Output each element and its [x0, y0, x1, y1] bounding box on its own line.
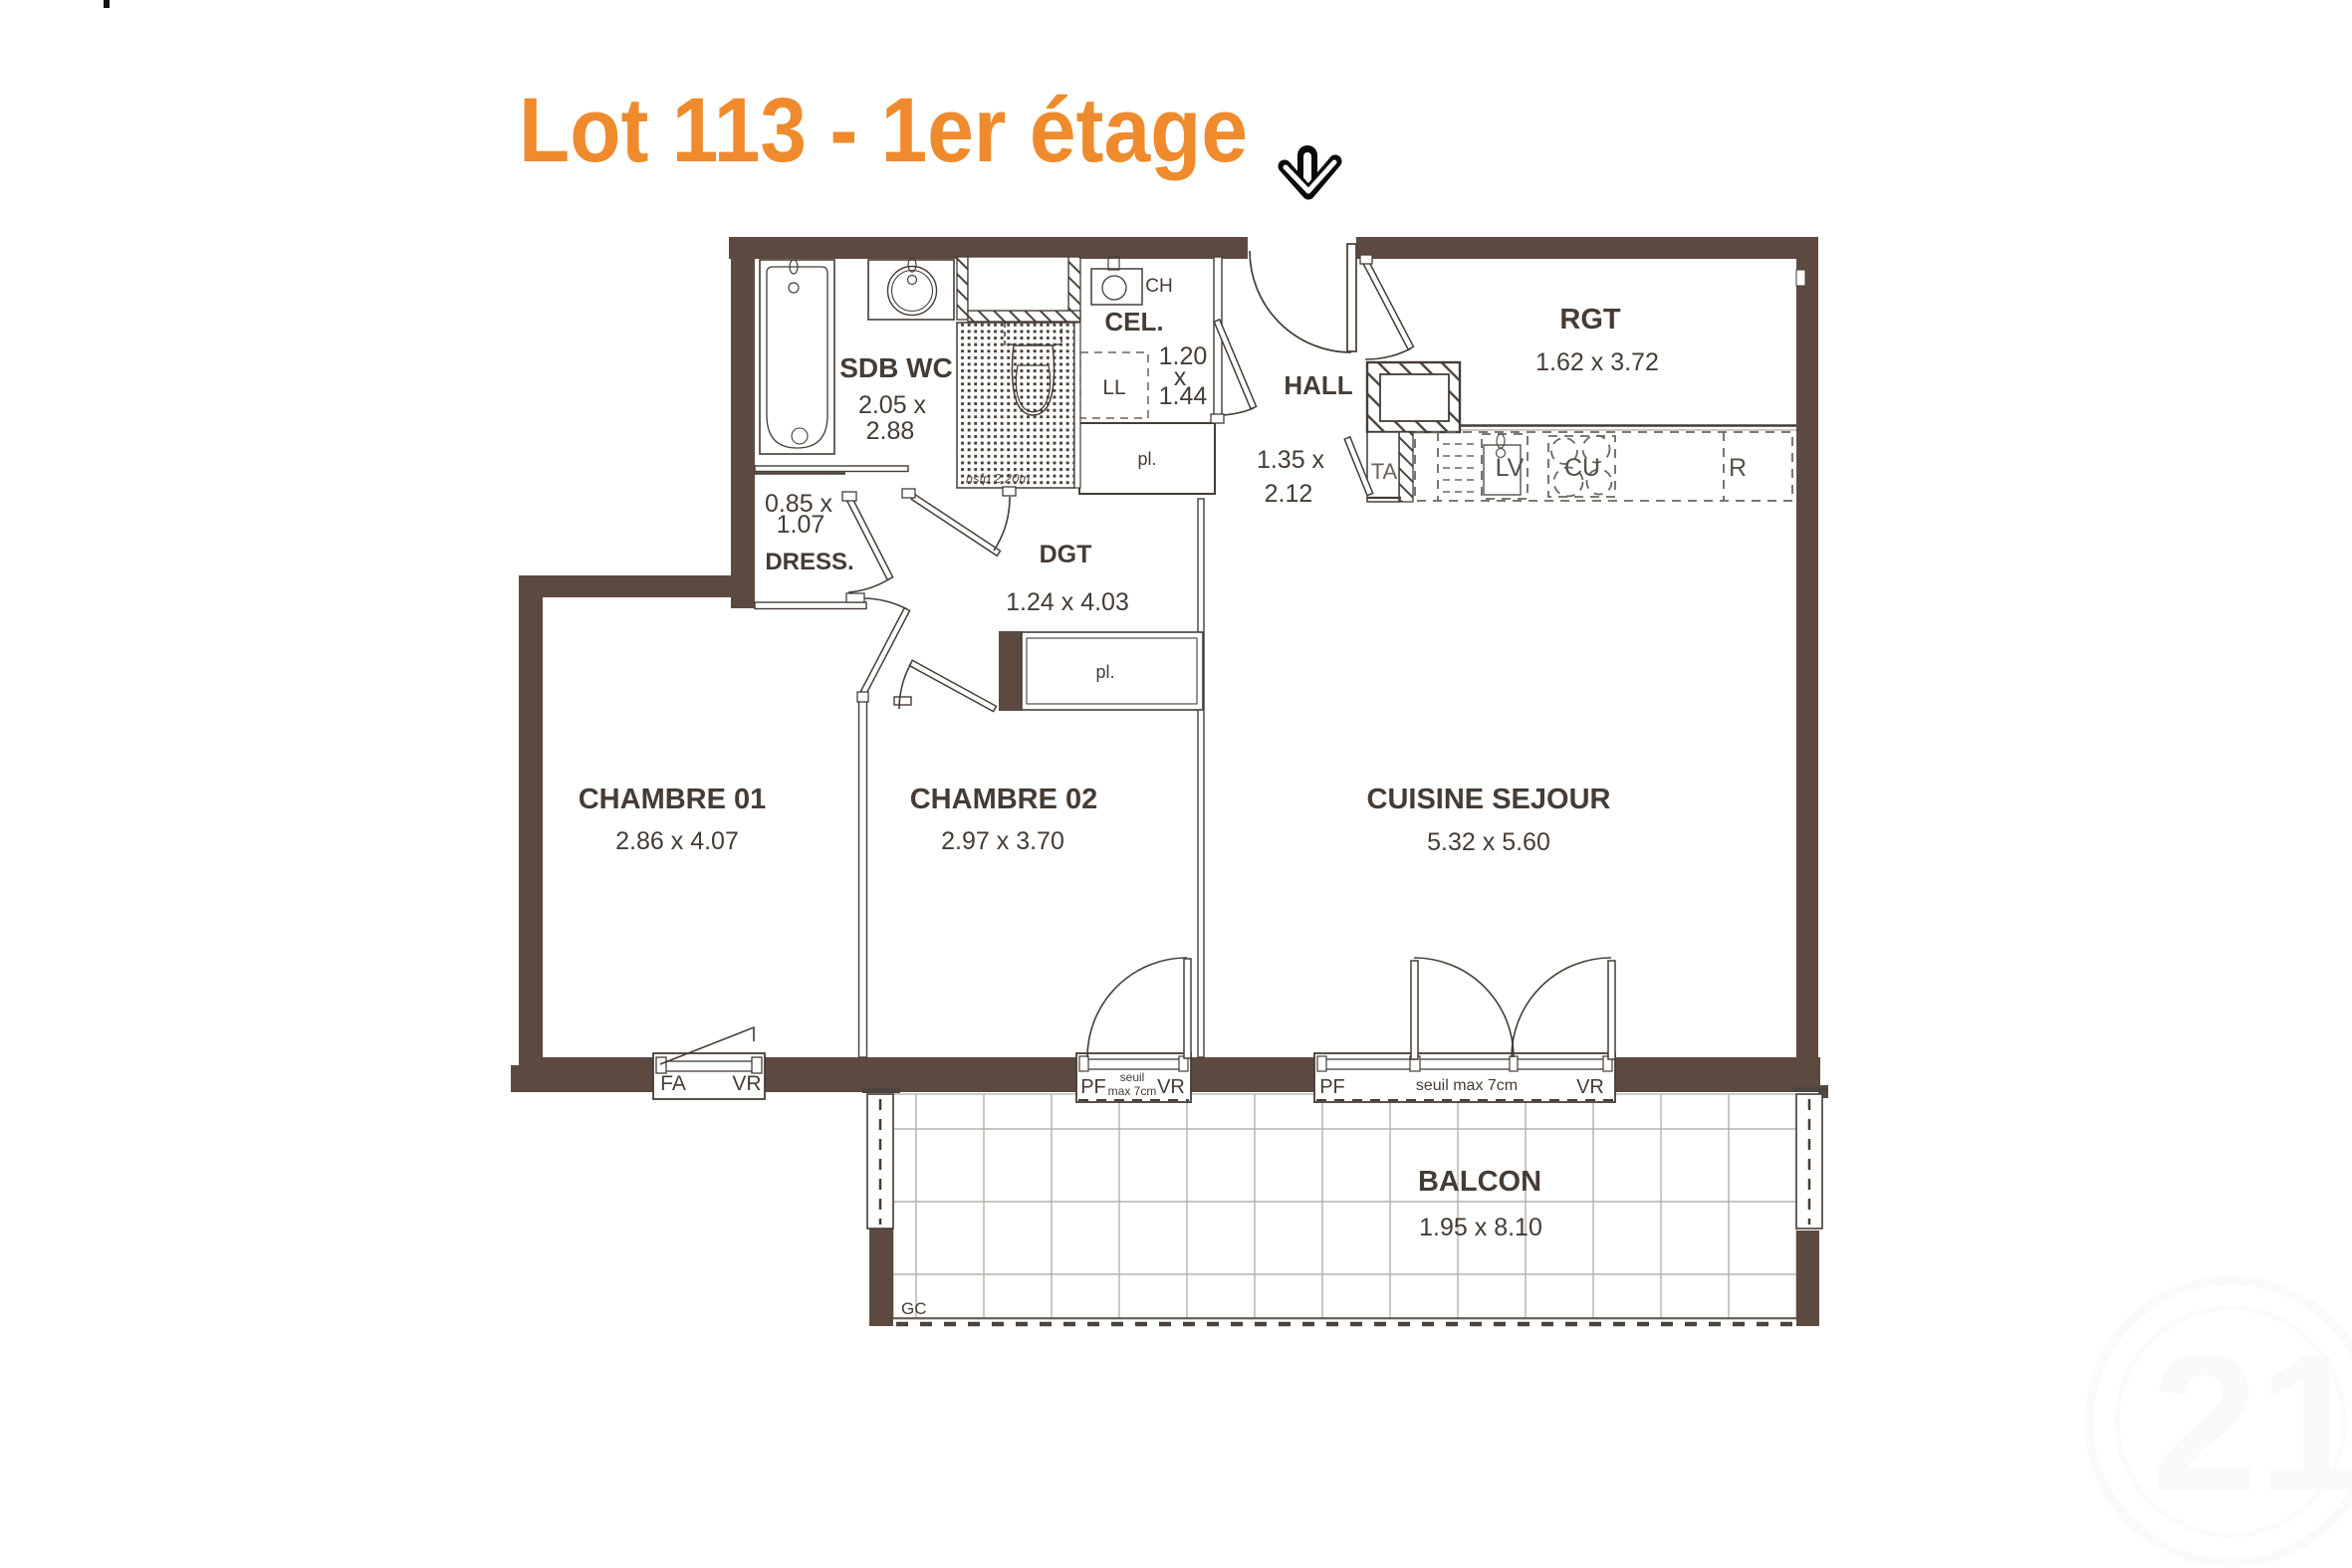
- svg-text:max 7cm: max 7cm: [1108, 1084, 1157, 1098]
- svg-text:CU: CU: [1564, 454, 1600, 482]
- svg-text:FA: FA: [660, 1072, 686, 1095]
- svg-text:1.62 x 3.72: 1.62 x 3.72: [1535, 348, 1659, 376]
- svg-text:seuil max 7cm: seuil max 7cm: [1416, 1077, 1518, 1094]
- svg-text:1.95 x 8.10: 1.95 x 8.10: [1419, 1214, 1542, 1241]
- svg-text:CEL.: CEL.: [1104, 307, 1163, 336]
- svg-text:seuil: seuil: [1120, 1070, 1145, 1084]
- svg-text:VR: VR: [1157, 1076, 1185, 1098]
- svg-text:Lot 113 - 1er étage: Lot 113 - 1er étage: [519, 80, 1248, 181]
- svg-text:DRESS.: DRESS.: [765, 549, 853, 575]
- svg-text:HALL: HALL: [1284, 370, 1352, 400]
- svg-text:GC: GC: [901, 1299, 927, 1318]
- svg-text:SDB WC: SDB WC: [839, 352, 953, 383]
- svg-text:CHAMBRE 02: CHAMBRE 02: [910, 784, 1098, 815]
- svg-text:21: 21: [2151, 1314, 2352, 1531]
- svg-text:nsfp 2.20m: nsfp 2.20m: [966, 471, 1030, 486]
- svg-text:pl.: pl.: [1095, 662, 1114, 682]
- svg-text:2.05 x: 2.05 x: [858, 391, 927, 419]
- svg-text:pl.: pl.: [1137, 449, 1156, 469]
- svg-text:1.35 x: 1.35 x: [1257, 446, 1325, 474]
- svg-text:1.07: 1.07: [777, 511, 825, 539]
- svg-text:VR: VR: [1576, 1076, 1604, 1098]
- svg-text:2.88: 2.88: [866, 417, 915, 445]
- svg-text:2.86 x 4.07: 2.86 x 4.07: [615, 827, 739, 855]
- svg-text:DGT: DGT: [1040, 541, 1092, 568]
- svg-text:1.44: 1.44: [1159, 382, 1208, 410]
- svg-text:2.12: 2.12: [1265, 480, 1313, 508]
- svg-text:LL: LL: [1102, 376, 1125, 399]
- svg-text:LV: LV: [1496, 454, 1525, 482]
- svg-text:2.97 x 3.70: 2.97 x 3.70: [941, 827, 1064, 855]
- svg-text:PF: PF: [1319, 1076, 1345, 1098]
- svg-text:PF: PF: [1080, 1076, 1106, 1098]
- svg-text:TA: TA: [1371, 459, 1398, 484]
- svg-text:R: R: [1729, 454, 1747, 482]
- svg-text:BALCON: BALCON: [1418, 1166, 1541, 1198]
- svg-text:1.24 x 4.03: 1.24 x 4.03: [1006, 588, 1129, 616]
- svg-text:CH: CH: [1145, 276, 1172, 297]
- svg-text:RGT: RGT: [1559, 304, 1621, 336]
- svg-text:CUISINE SEJOUR: CUISINE SEJOUR: [1367, 784, 1611, 815]
- svg-text:CHAMBRE 01: CHAMBRE 01: [579, 784, 767, 815]
- svg-text:5.32 x 5.60: 5.32 x 5.60: [1427, 828, 1550, 856]
- svg-text:VR: VR: [732, 1072, 761, 1095]
